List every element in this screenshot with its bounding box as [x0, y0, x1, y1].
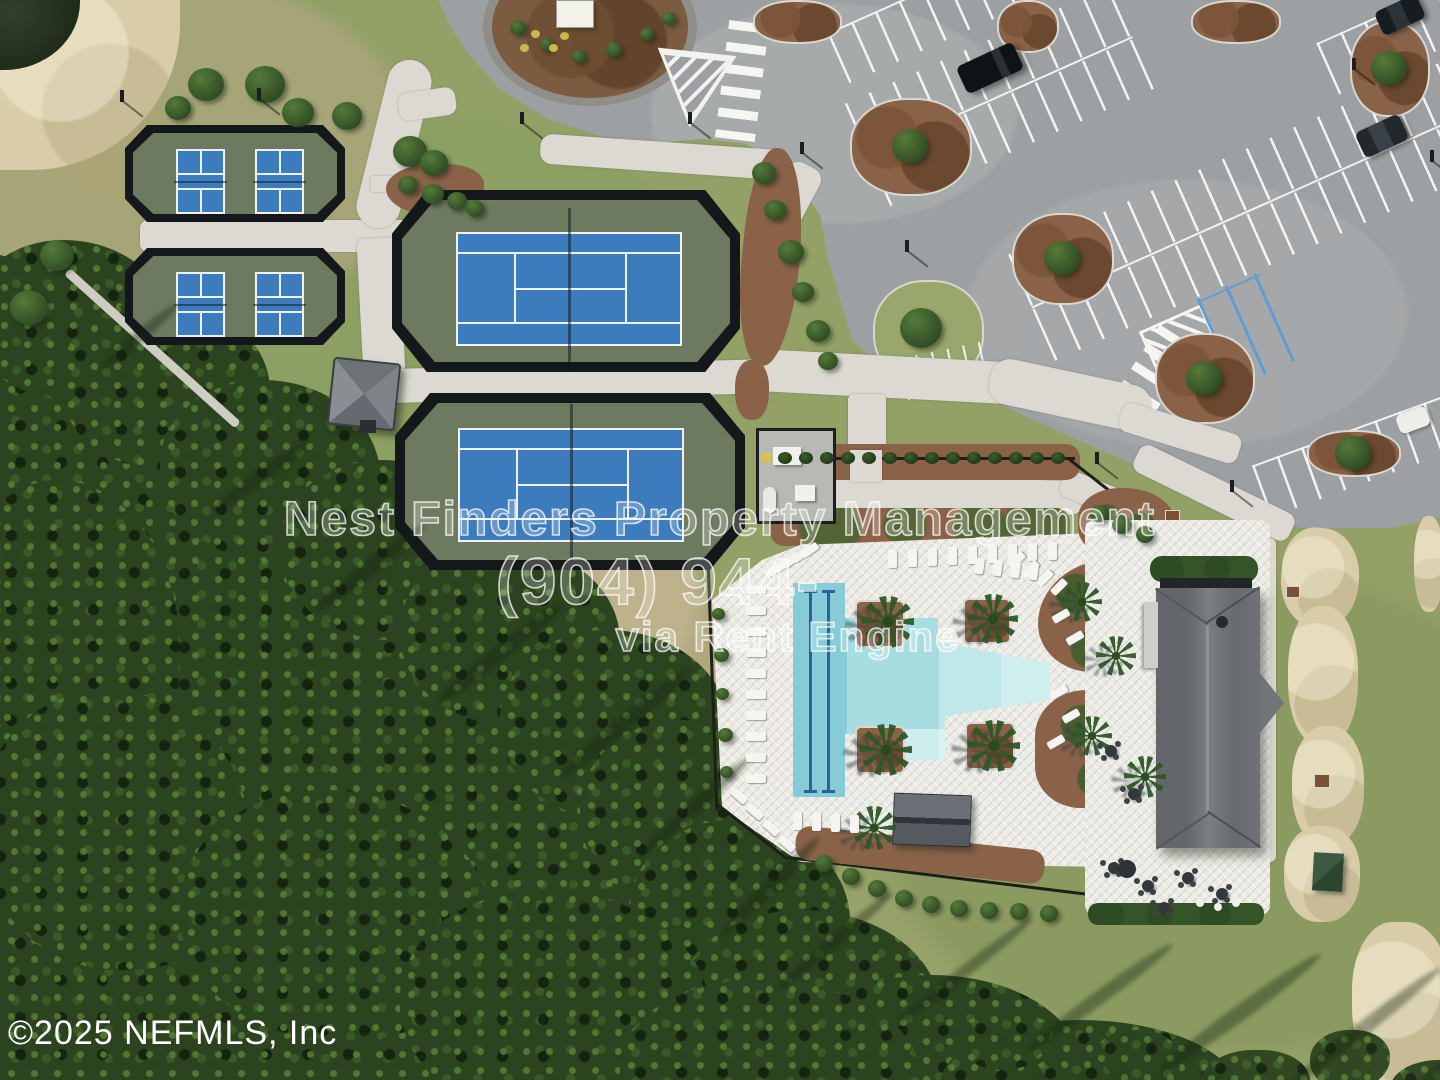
patio-chair [1113, 754, 1119, 760]
hedge-shrub [820, 452, 834, 464]
pickleball-court [255, 149, 304, 214]
bush [165, 96, 191, 120]
kitchen-line [257, 173, 302, 175]
pool-lounger [746, 753, 766, 762]
island-tree [1186, 361, 1222, 395]
center-line [279, 312, 281, 335]
patio-chair [1136, 797, 1142, 803]
pool-lounger [746, 711, 766, 720]
lap-lane-cap [822, 790, 835, 793]
service-line [514, 252, 516, 322]
hedge-shrub [904, 452, 918, 464]
aerial-photo-community-amenity-center: Nest Finders Property Management (904) 9… [0, 0, 1440, 1080]
patio-umbrella [1118, 860, 1136, 878]
patio-chair [1138, 890, 1144, 896]
bush [752, 162, 776, 184]
bush [895, 890, 913, 907]
shed-cart [1346, 884, 1361, 893]
bush [282, 98, 314, 127]
bush [980, 902, 998, 919]
bush [1010, 903, 1028, 920]
bush [40, 240, 74, 271]
bush [718, 728, 733, 742]
bush [640, 28, 654, 41]
center-line [279, 151, 281, 173]
patio-chair [1166, 911, 1172, 917]
pool-pavilion-roof [892, 793, 972, 848]
net-shadow [253, 181, 306, 183]
bush [778, 240, 804, 264]
center-line [200, 189, 202, 212]
bush [922, 896, 940, 913]
pool-lounger [746, 774, 766, 783]
light-post-shadow [1097, 462, 1119, 480]
pool-lounger [812, 813, 821, 831]
patio-chair [1190, 881, 1196, 887]
patio-chair [1104, 872, 1110, 878]
pickleball-enclosure-1-surface [133, 133, 337, 214]
bush [398, 176, 418, 194]
bush [792, 282, 814, 302]
center-line [279, 274, 281, 296]
utility-box [1314, 774, 1330, 788]
bush [716, 688, 729, 700]
center-line [279, 189, 281, 212]
pool-lounger [793, 812, 802, 830]
island-tree [1371, 51, 1407, 85]
patio-chair [1101, 755, 1107, 761]
patio-chair [1224, 897, 1230, 903]
patio-chair [1124, 798, 1130, 804]
island-tree [1335, 436, 1371, 470]
roof-hip-line [1156, 812, 1210, 849]
bush [806, 320, 830, 342]
bush [606, 42, 622, 57]
island-tree [892, 129, 928, 163]
pickleball-court [176, 149, 225, 214]
flower-cluster [549, 44, 558, 52]
bush [662, 12, 676, 25]
hedge-shrub [1009, 452, 1023, 464]
bush [950, 900, 968, 917]
white-chair [1196, 899, 1204, 907]
bush [510, 20, 526, 35]
patio-chair [1120, 786, 1126, 792]
bush [422, 184, 444, 204]
net-shadow [174, 304, 227, 306]
parking-island [1191, 0, 1281, 44]
island-tree [900, 308, 942, 348]
palm-tree [860, 724, 912, 776]
pool-lounger [746, 669, 766, 678]
bush [818, 352, 838, 370]
mls-copyright: ©2025 NEFMLS, Inc [8, 1014, 337, 1053]
bush [466, 200, 484, 217]
hedge-shrub [1030, 452, 1044, 464]
hedge-shrub [883, 452, 897, 464]
hedge-shrub [946, 452, 960, 464]
bush [868, 880, 886, 897]
equipment-yellow-box [762, 453, 771, 462]
patio-chair [1134, 878, 1140, 884]
storage-shed [1312, 852, 1344, 892]
net-shadow [174, 181, 227, 183]
patio-chair [1154, 912, 1160, 918]
bush [720, 766, 733, 778]
hedge-shrub [841, 452, 855, 464]
bush [1040, 905, 1058, 922]
pool-lounger [746, 690, 766, 699]
bush [332, 102, 362, 130]
hedge-shrub [799, 452, 813, 464]
patio-chair [1115, 741, 1121, 747]
bush [447, 192, 467, 210]
watermark-line2: (904) 944- [0, 548, 1378, 614]
watermark-line3: via Rent Engine [68, 616, 1440, 658]
flower-cluster [531, 30, 540, 38]
white-chair [1214, 903, 1222, 911]
patio-chair [1152, 876, 1158, 882]
island-tree [1044, 241, 1080, 275]
center-line [200, 274, 202, 296]
pickleball-court [176, 272, 225, 337]
bush [572, 50, 586, 63]
patio-chair [1100, 860, 1106, 866]
pool-lounger [850, 815, 859, 833]
kitchen-line [178, 296, 223, 298]
hedge-shrub [988, 452, 1002, 464]
watermark-line1: Nest Finders Property Management [0, 496, 1440, 544]
flower-cluster [560, 32, 569, 40]
monument-sign [556, 0, 594, 28]
net-shadow [253, 304, 306, 306]
patio-chair [1097, 743, 1103, 749]
kitchen-line [257, 296, 302, 298]
patio-chair [1150, 900, 1156, 906]
center-line [200, 151, 202, 173]
bush [10, 290, 48, 325]
pine-canopy [1200, 1050, 1310, 1080]
tennis-court [456, 232, 682, 346]
kitchen-line [178, 173, 223, 175]
hedge-shrub [1051, 452, 1065, 464]
pool-lounger [746, 732, 766, 741]
bush [815, 855, 833, 872]
parking-island [753, 0, 842, 44]
light-post-shadow [522, 122, 544, 140]
court-pavilion-annex [360, 420, 376, 433]
patio-chair [1168, 898, 1174, 904]
hedge-shrub [967, 452, 981, 464]
patio-chair [1174, 870, 1180, 876]
hedge-shrub [925, 452, 939, 464]
pickleball-enclosure-2-surface [133, 256, 337, 337]
white-chair [1232, 899, 1240, 907]
bush [420, 150, 448, 176]
bush [842, 868, 860, 885]
bush [764, 200, 786, 220]
hedge-shrub [862, 452, 876, 464]
patio-chair [1192, 868, 1198, 874]
flower-cluster [520, 44, 529, 52]
service-line [625, 252, 627, 322]
center-line [200, 312, 202, 335]
lap-lane-cap [804, 790, 817, 793]
pool-lounger [831, 814, 840, 832]
patio-chair [1150, 889, 1156, 895]
net-shadow [568, 208, 571, 370]
patio-chair [1178, 882, 1184, 888]
patio-chair [1208, 886, 1214, 892]
patio-chair [1226, 884, 1232, 890]
hedge-shrub [778, 452, 792, 464]
bush [245, 66, 285, 103]
patio-chair [1138, 784, 1144, 790]
bush [188, 68, 224, 101]
roof-hip-line [1207, 811, 1261, 848]
pickleball-court [255, 272, 304, 337]
palm-tree [968, 720, 1020, 772]
bed-tennis-east [735, 360, 769, 420]
